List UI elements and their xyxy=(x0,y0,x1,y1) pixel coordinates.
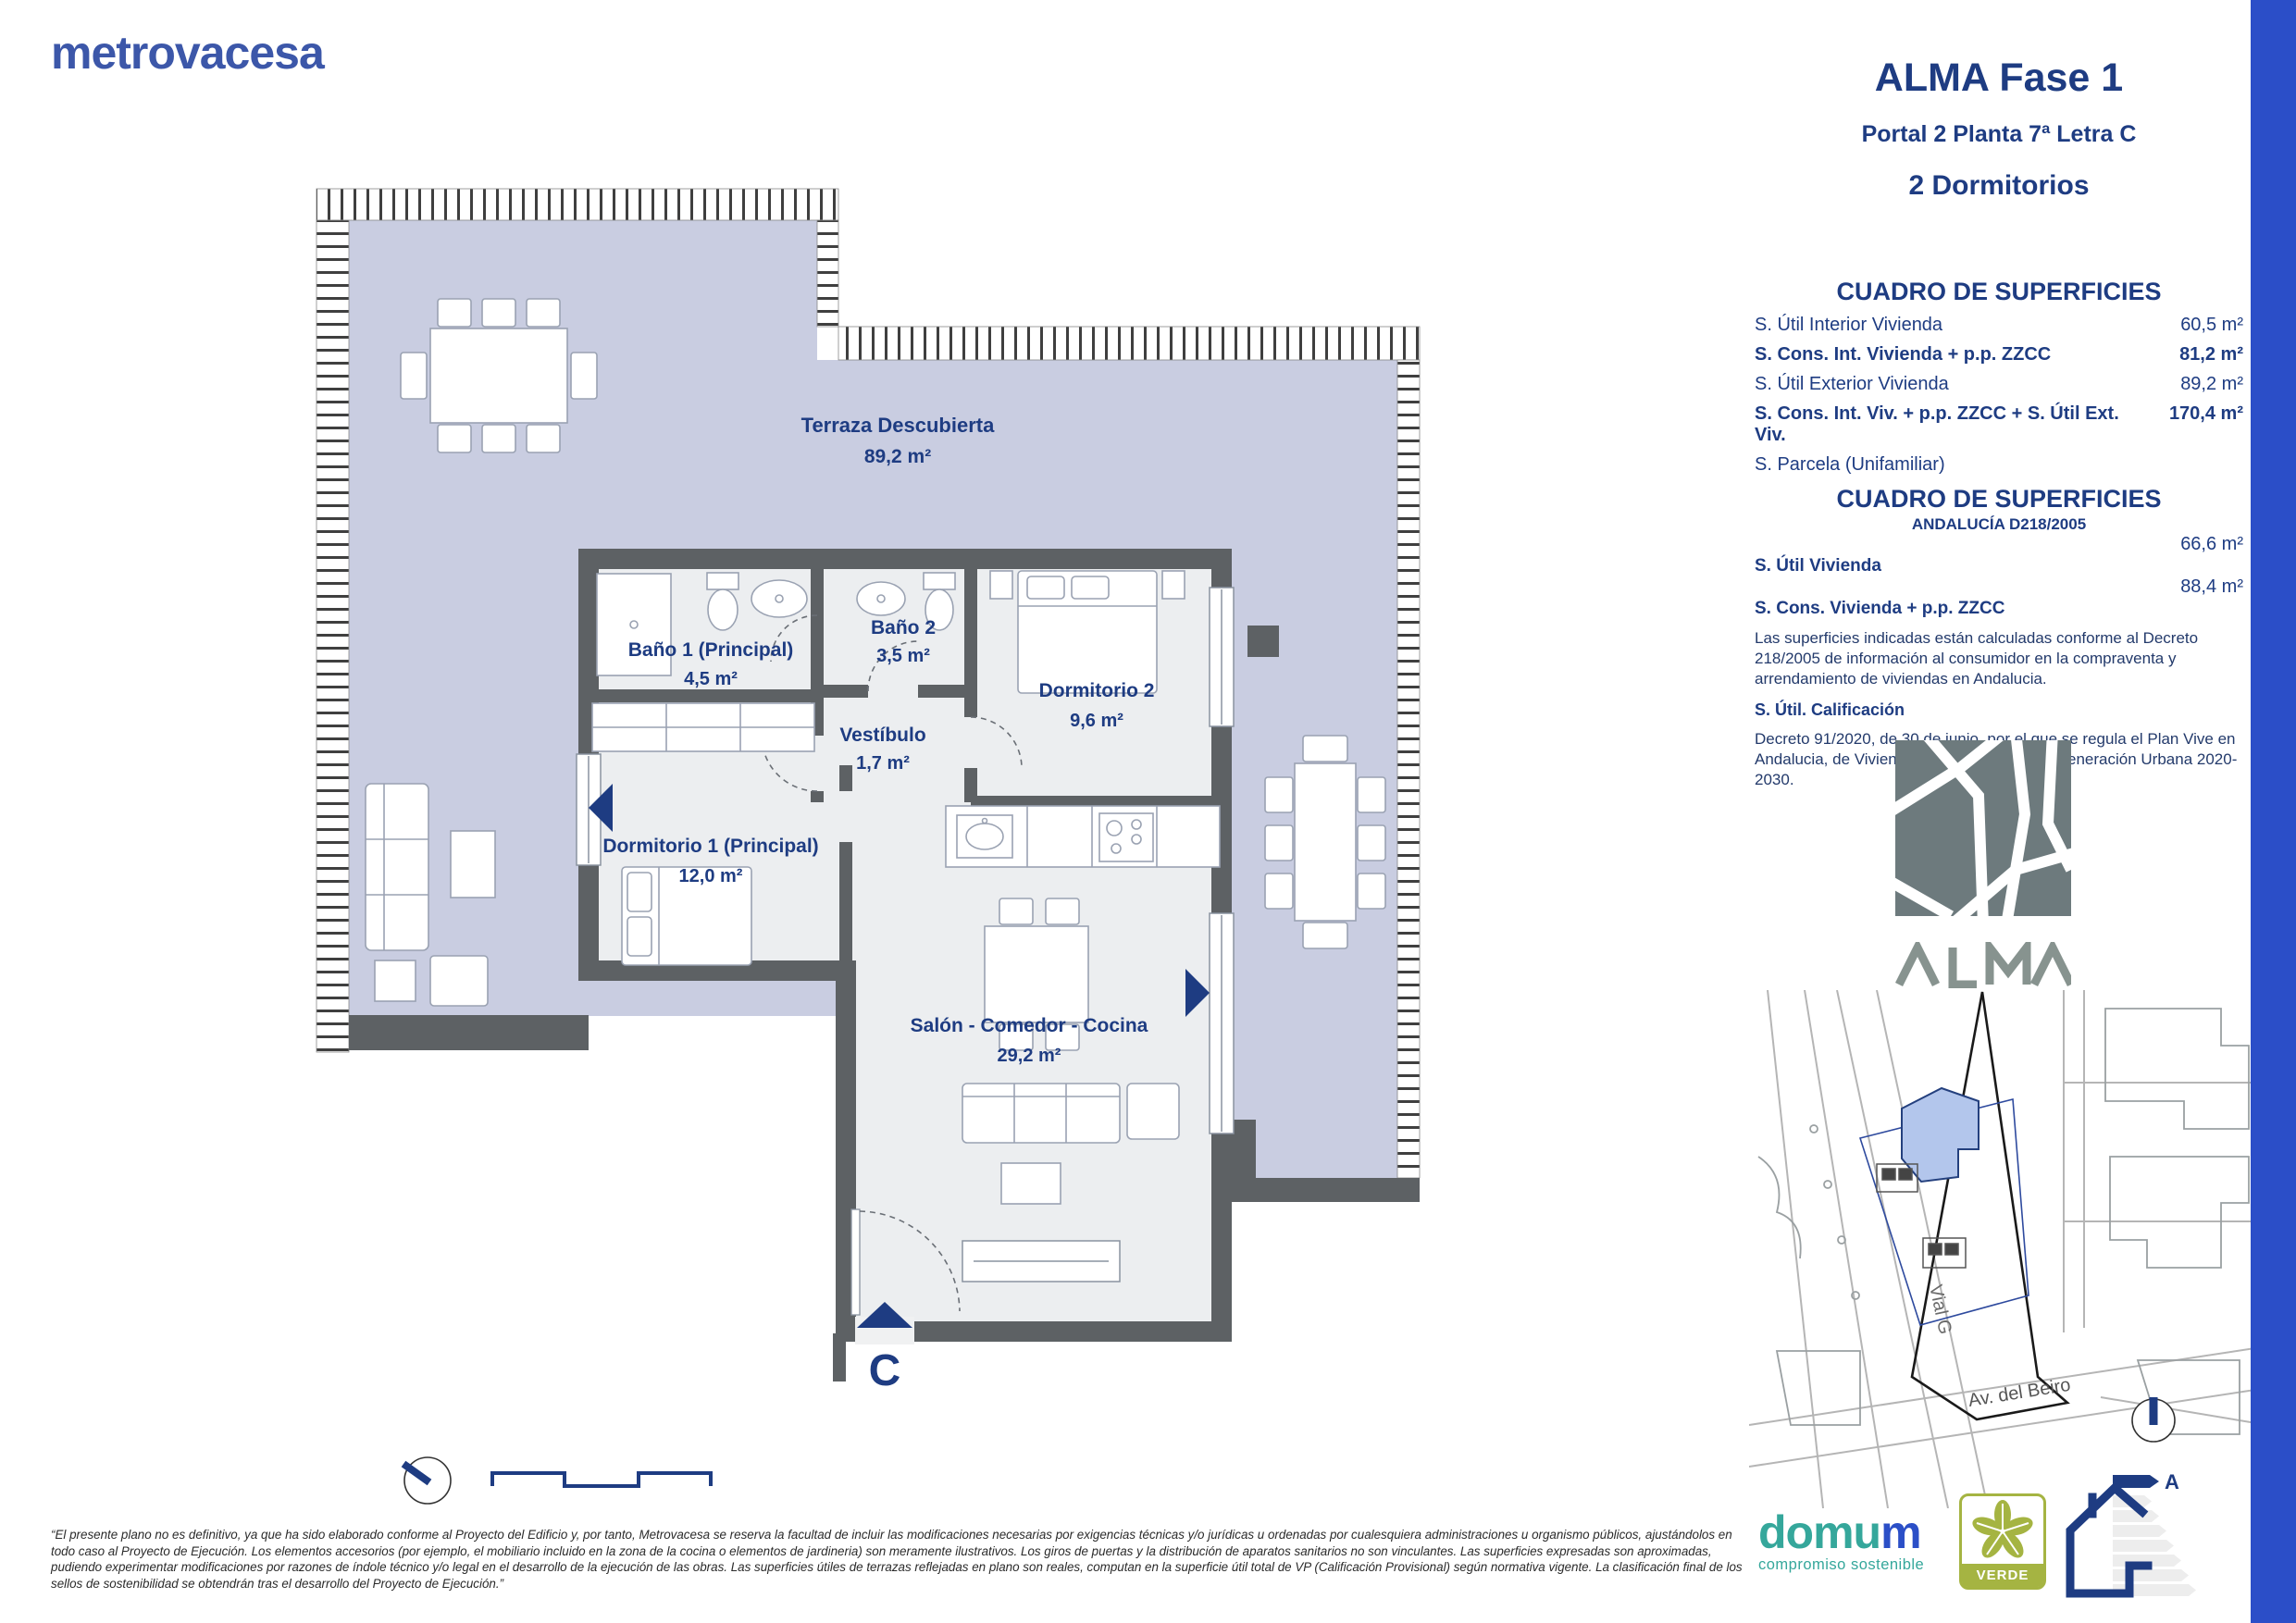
room-label: Vestíbulo xyxy=(839,725,925,746)
table-row: S. Útil Interior Vivienda 60,5 m² xyxy=(1755,315,2243,336)
plot-boundary xyxy=(1912,992,2067,1419)
row-value: 88,4 m² xyxy=(2180,576,2243,598)
row-label: S. Útil Interior Vivienda xyxy=(1755,315,1942,336)
site-map: Vial G Av. del Beiro xyxy=(1749,990,2267,1508)
row-label: S. Parcela (Unifamiliar) xyxy=(1755,454,1945,476)
room-area: 4,5 m² xyxy=(684,669,738,689)
page-title: ALMA Fase 1 xyxy=(1755,56,2243,101)
street-label: Vial G xyxy=(1925,1282,1955,1336)
entrance-door-leaf xyxy=(851,1209,860,1315)
metrovacesa-logo: metrovacesa xyxy=(51,26,324,80)
energy-label-icon: A xyxy=(2059,1473,2249,1603)
terrace-column xyxy=(1247,626,1279,657)
surface-table-title: CUADRO DE SUPERFICIES xyxy=(1755,485,2243,514)
row-value: 81,2 m² xyxy=(2179,344,2243,365)
room-label: Dormitorio 1 (Principal) xyxy=(602,836,818,857)
table-row: S. Útil Exterior Vivienda 89,2 m² xyxy=(1755,374,2243,395)
surface-table: CUADRO DE SUPERFICIES S. Útil Interior V… xyxy=(1755,278,2243,476)
compass-icon xyxy=(396,1449,455,1508)
verde-badge-label: VERDE xyxy=(1962,1564,2043,1587)
verde-badge: VERDE xyxy=(1959,1493,2046,1590)
unit-subtitle: Portal 2 Planta 7ª Letra C xyxy=(1755,121,2243,148)
bedrooms-label: 2 Dormitorios xyxy=(1755,170,2243,202)
energy-rating-letter: A xyxy=(2165,1473,2179,1493)
room-label: Dormitorio 2 xyxy=(1039,680,1155,701)
scale-bar xyxy=(489,1468,718,1492)
kitchen-counter xyxy=(946,806,1220,867)
domum-logo-text: domu xyxy=(1758,1506,1880,1558)
row-value: 66,6 m² xyxy=(2180,534,2243,555)
plan-sheet: metrovacesa ALMA Fase 1 Portal 2 Planta … xyxy=(0,0,2296,1623)
map-streets xyxy=(1749,990,2267,1508)
room-area: 29,2 m² xyxy=(998,1046,1061,1066)
domum-logo: domum compromiso sostenible xyxy=(1758,1510,1971,1574)
room-area: 3,5 m² xyxy=(876,646,930,666)
dorm2-furniture xyxy=(990,571,1185,693)
surface-table-subtitle: ANDALUCÍA D218/2005 xyxy=(1755,515,2243,534)
entrance-letter: C xyxy=(869,1346,901,1393)
room-area: 1,7 m² xyxy=(856,753,910,774)
row-value: 60,5 m² xyxy=(2180,315,2243,336)
side-accent-bar xyxy=(2251,0,2296,1623)
calification-label: S. Útil. Calificación xyxy=(1755,700,2243,720)
decree-note: Las superficies indicadas están calculad… xyxy=(1755,628,2243,689)
rating-arrow-icon xyxy=(2113,1475,2159,1488)
row-value: 89,2 m² xyxy=(2180,374,2243,395)
leaf-icon xyxy=(1962,1496,2043,1563)
domum-tagline: compromiso sostenible xyxy=(1758,1556,1971,1574)
alma-logotype xyxy=(1895,942,2071,988)
row-label: S. Cons. Int. Viv. + p.p. ZZCC + S. Útil… xyxy=(1755,403,2143,446)
entrance-wall-stub xyxy=(833,1333,846,1381)
highlighted-building xyxy=(1902,1088,1979,1182)
map-tile-icon xyxy=(1895,740,2071,916)
row-label: S. Cons. Vivienda + p.p. ZZCC xyxy=(1755,599,2004,619)
table-row: S. Parcela (Unifamiliar) xyxy=(1755,454,2243,476)
row-value: 170,4 m² xyxy=(2169,403,2243,425)
legal-disclaimer: “El presente plano no es definitivo, ya … xyxy=(51,1527,1744,1592)
table-row: S. Cons. Int. Viv. + p.p. ZZCC + S. Útil… xyxy=(1755,403,2243,446)
table-row: 88,4 m² S. Cons. Vivienda + p.p. ZZCC xyxy=(1755,576,2243,619)
room-label: Salón - Comedor - Cocina xyxy=(911,1015,1148,1036)
room-area: 9,6 m² xyxy=(1070,711,1123,731)
room-label: Terraza Descubierta xyxy=(801,414,995,437)
room-area: 12,0 m² xyxy=(679,866,743,886)
row-label: S. Útil Vivienda xyxy=(1755,556,1881,576)
header-block: ALMA Fase 1 Portal 2 Planta 7ª Letra C 2… xyxy=(1755,56,2243,202)
surface-table-title: CUADRO DE SUPERFICIES xyxy=(1755,278,2243,306)
floor-plan: Terraza Descubierta 89,2 m² Baño 1 (Prin… xyxy=(315,180,1462,1393)
row-label: S. Cons. Int. Vivienda + p.p. ZZCC xyxy=(1755,344,2051,365)
room-label: Baño 1 (Principal) xyxy=(628,639,794,661)
terrace-wall xyxy=(1210,1178,1420,1202)
room-area: 89,2 m² xyxy=(864,446,931,467)
terrace-wall xyxy=(349,1015,589,1050)
table-row: 66,6 m² S. Útil Vivienda xyxy=(1755,534,2243,576)
table-row: S. Cons. Int. Vivienda + p.p. ZZCC 81,2 … xyxy=(1755,344,2243,365)
row-label: S. Útil Exterior Vivienda xyxy=(1755,374,1949,395)
room-label: Baño 2 xyxy=(871,617,936,638)
